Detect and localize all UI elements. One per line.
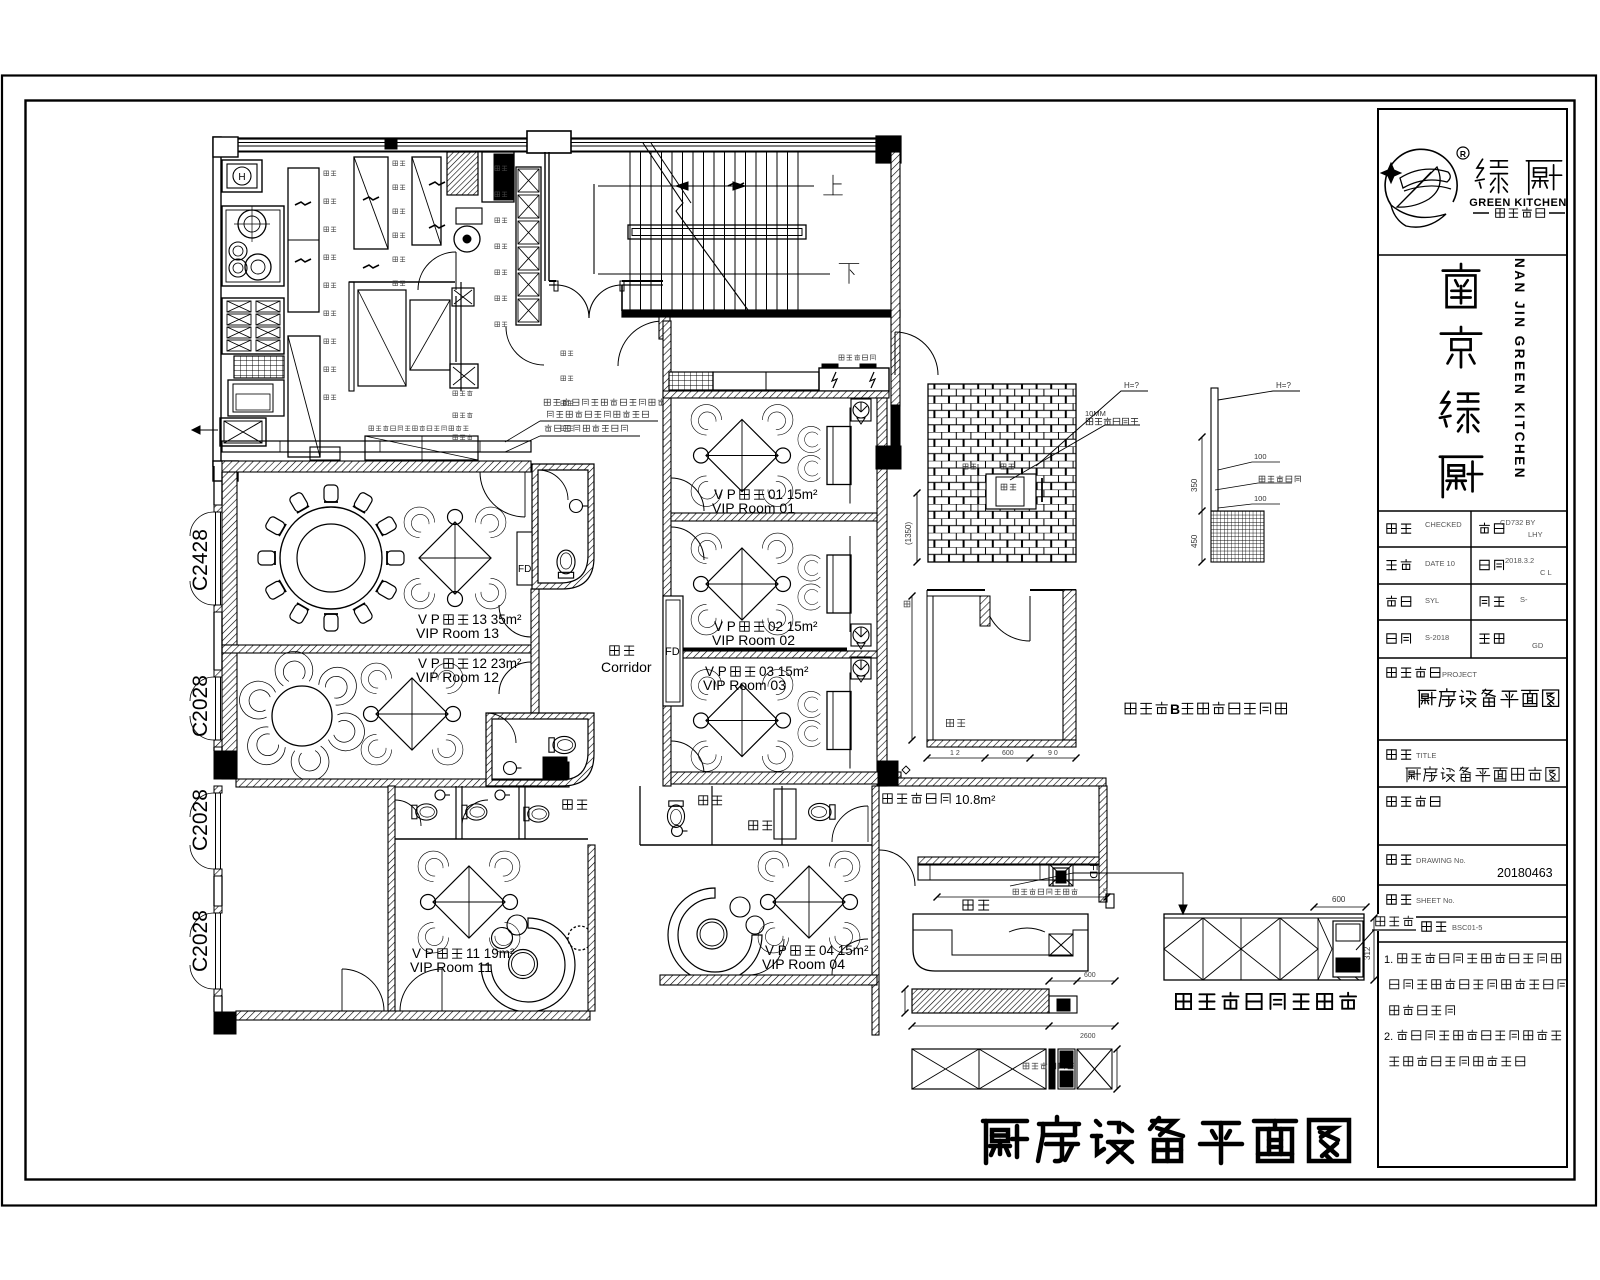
svg-text:H=?: H=?: [1276, 381, 1291, 390]
svg-text:FD: FD: [665, 646, 680, 658]
svg-text:600: 600: [1002, 750, 1014, 757]
svg-text:B: B: [1170, 701, 1180, 717]
svg-text:C2028: C2028: [189, 675, 212, 737]
svg-text:SHEET No.: SHEET No.: [1416, 896, 1455, 905]
svg-text:C L: C L: [1540, 568, 1552, 577]
svg-text:VIP Room 02: VIP Room 02: [712, 632, 795, 648]
svg-text:S-: S-: [1520, 595, 1528, 604]
svg-text:DATE 10: DATE 10: [1425, 559, 1455, 568]
svg-text:VIP Room 03: VIP Room 03: [703, 677, 786, 693]
svg-text:450: 450: [1190, 534, 1199, 548]
svg-text:GREEN KITCHEN: GREEN KITCHEN: [1469, 197, 1567, 209]
svg-text:600: 600: [1084, 972, 1096, 979]
svg-text:H: H: [238, 172, 245, 183]
svg-text:H=?: H=?: [1124, 381, 1139, 390]
svg-text:1.: 1.: [1384, 954, 1393, 966]
svg-text:GD: GD: [1532, 641, 1544, 650]
svg-text:2600: 2600: [1080, 1033, 1096, 1040]
svg-text:2018.3.2: 2018.3.2: [1505, 556, 1534, 565]
svg-text:PROJECT: PROJECT: [1442, 670, 1477, 679]
svg-text:R: R: [1460, 149, 1466, 159]
svg-text:100: 100: [1254, 452, 1267, 461]
svg-text:BSC01-5: BSC01-5: [1452, 923, 1482, 932]
svg-text:VIP Room 13: VIP Room 13: [416, 625, 499, 641]
svg-text:VIP Room 12: VIP Room 12: [416, 669, 499, 685]
svg-text:10.8m²: 10.8m²: [955, 792, 996, 807]
svg-text:(1350): (1350): [904, 522, 913, 545]
svg-text:TITLE: TITLE: [1416, 751, 1436, 760]
svg-text:C2028: C2028: [189, 789, 212, 851]
svg-text:1 2: 1 2: [950, 750, 960, 757]
svg-text:350: 350: [1190, 478, 1199, 492]
svg-text:9 0: 9 0: [1048, 750, 1058, 757]
svg-text:CD732 BY: CD732 BY: [1500, 518, 1535, 527]
svg-text:CHECKED: CHECKED: [1425, 520, 1462, 529]
svg-text:FD: FD: [518, 564, 531, 575]
svg-text:C2028: C2028: [189, 910, 212, 972]
svg-text:600: 600: [1332, 895, 1346, 904]
svg-text:C2428: C2428: [189, 529, 212, 591]
svg-text:SYL: SYL: [1425, 596, 1439, 605]
svg-text:S-2018: S-2018: [1425, 633, 1449, 642]
svg-text:LHY: LHY: [1528, 530, 1543, 539]
svg-text:DRAWING No.: DRAWING No.: [1416, 856, 1466, 865]
svg-text:100: 100: [1254, 494, 1267, 503]
svg-text:20180463: 20180463: [1497, 866, 1553, 880]
svg-text:312: 312: [1363, 946, 1372, 960]
svg-text:VIP Room 11: VIP Room 11: [410, 959, 492, 975]
svg-text:NAN JIN GREEN KITCHEN: NAN JIN GREEN KITCHEN: [1512, 258, 1527, 480]
svg-text:Corridor: Corridor: [601, 659, 652, 675]
svg-text:2.: 2.: [1384, 1031, 1393, 1043]
svg-text:FD: FD: [1087, 864, 1099, 879]
svg-text:H: H: [1103, 888, 1108, 895]
